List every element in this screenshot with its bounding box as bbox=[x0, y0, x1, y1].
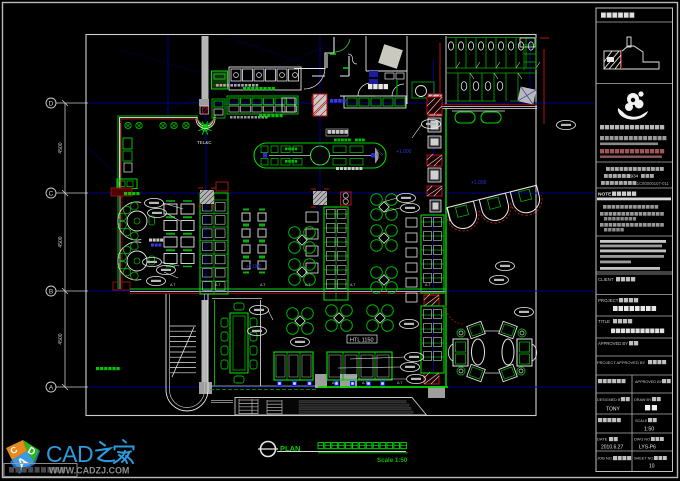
svg-text:D: D bbox=[49, 100, 54, 107]
svg-text:+1.000: +1.000 bbox=[246, 264, 262, 270]
svg-text:PROJECT APPROVED BY: PROJECT APPROVED BY bbox=[597, 360, 645, 365]
svg-text:DWG NO.: DWG NO. bbox=[634, 438, 651, 442]
svg-text:CLIENT: CLIENT bbox=[598, 277, 614, 282]
svg-text:A.T: A.T bbox=[425, 283, 431, 287]
svg-text:A.T: A.T bbox=[305, 283, 311, 287]
svg-text:SCALE: SCALE bbox=[635, 419, 648, 423]
svg-text:WWW.CADZJ.COM: WWW.CADZJ.COM bbox=[49, 466, 129, 476]
svg-text:PROJECT: PROJECT bbox=[598, 298, 619, 303]
svg-text:DATE: DATE bbox=[597, 437, 608, 442]
svg-text:A: A bbox=[49, 384, 54, 391]
svg-text:+1.000: +1.000 bbox=[396, 149, 412, 155]
svg-text:APPROVED BY: APPROVED BY bbox=[635, 380, 663, 384]
svg-text:4500: 4500 bbox=[58, 236, 64, 247]
svg-text:TONY: TONY bbox=[606, 407, 620, 413]
svg-text:A.T: A.T bbox=[397, 381, 403, 385]
svg-text:SHEET NO.: SHEET NO. bbox=[634, 457, 654, 461]
svg-text:4500: 4500 bbox=[58, 142, 64, 153]
svg-text:A.T: A.T bbox=[350, 283, 356, 287]
svg-text:APPROVED BY: APPROVED BY bbox=[598, 341, 628, 346]
svg-text:HTL 1150: HTL 1150 bbox=[350, 338, 374, 344]
svg-text:DRAW BY: DRAW BY bbox=[634, 398, 652, 402]
svg-text:B1C80000107-011: B1C80000107-011 bbox=[634, 181, 670, 186]
svg-text:+1.000: +1.000 bbox=[471, 180, 487, 186]
svg-text:A.T: A.T bbox=[170, 283, 176, 287]
svg-text:A.T: A.T bbox=[362, 381, 368, 385]
svg-text:TEL&C: TEL&C bbox=[197, 140, 212, 145]
svg-text:1934: 1934 bbox=[628, 174, 639, 179]
svg-text:LYS-P6: LYS-P6 bbox=[639, 445, 656, 451]
svg-text:C: C bbox=[49, 190, 54, 197]
svg-text:4500: 4500 bbox=[58, 333, 64, 344]
svg-text:PLAN: PLAN bbox=[280, 444, 300, 453]
svg-text:1:50: 1:50 bbox=[644, 427, 654, 433]
svg-text:A.T: A.T bbox=[332, 381, 338, 385]
svg-text:TITLE: TITLE bbox=[598, 319, 610, 324]
svg-text:10: 10 bbox=[649, 464, 655, 470]
svg-text:B: B bbox=[49, 288, 53, 295]
svg-text:A.T: A.T bbox=[215, 283, 221, 287]
svg-text:2010.6.27: 2010.6.27 bbox=[601, 445, 623, 451]
svg-text:A.T: A.T bbox=[260, 283, 266, 287]
svg-text:DESIGNED BY: DESIGNED BY bbox=[597, 398, 623, 402]
svg-text:NOTE: NOTE bbox=[598, 192, 612, 198]
svg-text:JOB NO.: JOB NO. bbox=[597, 456, 613, 461]
svg-text:Scale 1:50: Scale 1:50 bbox=[377, 457, 408, 464]
